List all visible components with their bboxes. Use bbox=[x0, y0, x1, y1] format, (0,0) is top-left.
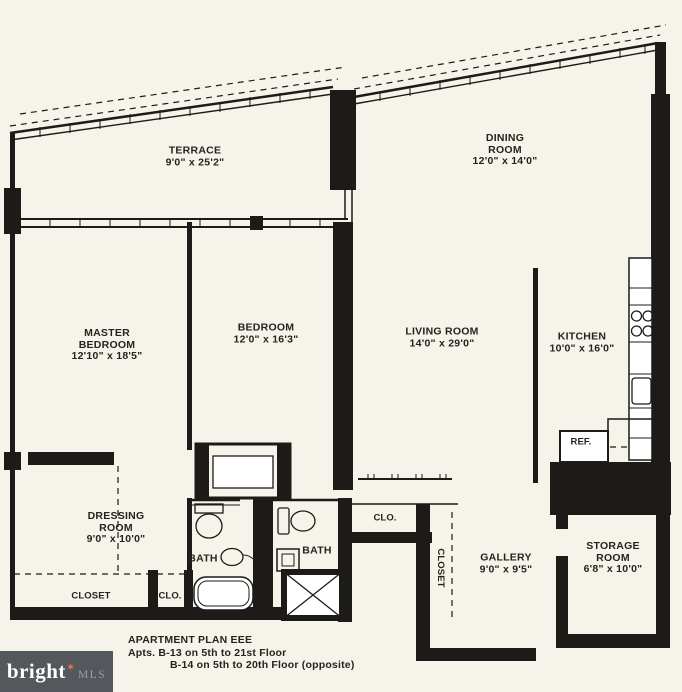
bath2-sink-icon bbox=[277, 549, 299, 571]
room-name: GALLERY bbox=[480, 553, 533, 565]
room-name: DRESSING bbox=[87, 511, 146, 523]
watermark-brand-word: bright bbox=[7, 659, 66, 683]
room-name: MASTER bbox=[71, 328, 142, 340]
watermark-brand-text: bright✶MLS bbox=[7, 659, 106, 684]
bedroom-closet bbox=[196, 444, 290, 498]
second-bath-label: BATH bbox=[302, 545, 331, 557]
room-dims: 12'10" x 18'5" bbox=[71, 351, 142, 363]
dining-room-label: DINING ROOM 12'0" x 14'0" bbox=[473, 133, 538, 168]
room-name: TERRACE bbox=[166, 146, 225, 158]
room-dims: 9'0" x 25'2" bbox=[166, 157, 225, 169]
dressing-room-label: DRESSING ROOM 9'0" x 10'0" bbox=[87, 511, 146, 546]
room-name: STORAGE bbox=[584, 541, 643, 553]
bath1-toilet-icon bbox=[195, 504, 223, 538]
plan-title: APARTMENT PLAN EEE bbox=[128, 634, 355, 647]
plan-title-block: APARTMENT PLAN EEE Apts. B-13 on 5th to … bbox=[128, 634, 355, 672]
watermark-star-icon: ✶ bbox=[67, 662, 75, 672]
master-bedroom-label: MASTER BEDROOM 12'10" x 18'5" bbox=[71, 328, 142, 363]
storage-room-label: STORAGE ROOM 6'8" x 10'0" bbox=[584, 541, 643, 576]
terrace-label: TERRACE 9'0" x 25'2" bbox=[166, 146, 225, 169]
brightmls-watermark: bright✶MLS bbox=[0, 651, 113, 692]
room-dims: 9'0" x 9'5" bbox=[480, 564, 533, 576]
refrigerator-label: REF. bbox=[571, 436, 592, 448]
room-name: DINING bbox=[473, 133, 538, 145]
plan-apartments-line2: B-14 on 5th to 20th Floor (opposite) bbox=[128, 659, 355, 672]
room-name: BATH bbox=[302, 545, 331, 557]
room-name: CLOSET bbox=[71, 590, 110, 602]
gallery-label: GALLERY 9'0" x 9'5" bbox=[480, 553, 533, 576]
plan-apartments-line1: Apts. B-13 on 5th to 21st Floor bbox=[128, 647, 355, 660]
bathtub-icon bbox=[194, 577, 253, 610]
room-dims: 10'0" x 16'0" bbox=[550, 343, 615, 355]
room-name: BEDROOM bbox=[234, 323, 299, 335]
master-bath-label: BATH bbox=[188, 553, 217, 565]
room-dims: 14'0" x 29'0" bbox=[405, 338, 478, 350]
room-name: LIVING ROOM bbox=[405, 327, 478, 339]
master-clo-label: CLO. bbox=[158, 590, 181, 602]
hall-clo-label: CLO. bbox=[373, 512, 396, 524]
gallery-closet-label: CLOSET bbox=[434, 548, 446, 587]
watermark-mls-text: MLS bbox=[78, 669, 106, 681]
master-closet-label: CLOSET bbox=[71, 590, 110, 602]
room-name: REF. bbox=[571, 436, 592, 448]
room-name: KITCHEN bbox=[550, 332, 615, 344]
bedroom-label: BEDROOM 12'0" x 16'3" bbox=[234, 323, 299, 346]
bath1-sink-icon bbox=[221, 549, 243, 566]
kitchen-label: KITCHEN 10'0" x 16'0" bbox=[550, 332, 615, 355]
room-dims: 12'0" x 14'0" bbox=[473, 156, 538, 168]
room-name: CLO. bbox=[158, 590, 181, 602]
room-name: CLOSET bbox=[434, 548, 446, 587]
room-dims: 6'8" x 10'0" bbox=[584, 564, 643, 576]
room-dims: 12'0" x 16'3" bbox=[234, 334, 299, 346]
living-room-label: LIVING ROOM 14'0" x 29'0" bbox=[405, 327, 478, 350]
bath2-toilet-icon bbox=[278, 508, 315, 534]
shower-icon bbox=[284, 572, 342, 618]
room-name: BATH bbox=[188, 553, 217, 565]
kitchen-counter bbox=[629, 258, 652, 460]
room-dims: 9'0" x 10'0" bbox=[87, 534, 146, 546]
room-name: CLO. bbox=[373, 512, 396, 524]
